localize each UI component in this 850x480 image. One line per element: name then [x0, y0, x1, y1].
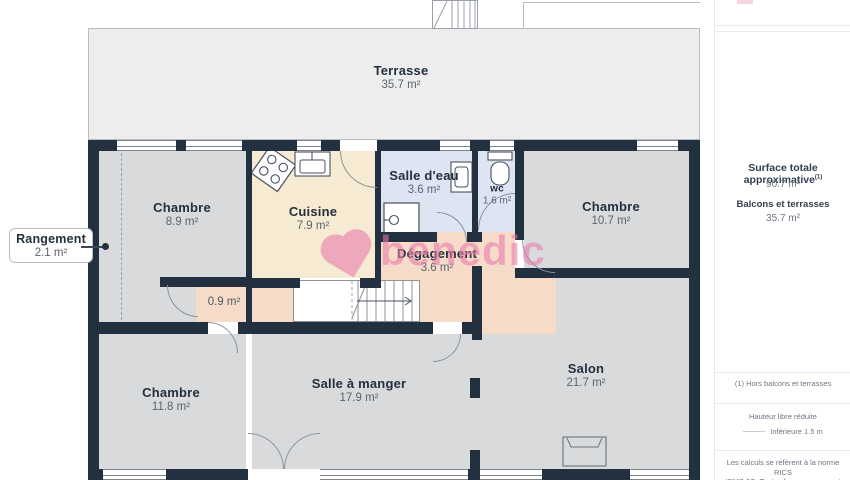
window — [117, 140, 176, 151]
window — [630, 469, 689, 480]
room-label-salle-a-manger: Salle à manger 17.9 m² — [312, 376, 407, 404]
room-degagement-opening-floor — [524, 278, 556, 334]
floor-plan-page: Terrasse 35.7 m² Chambre 8.9 m² Cuisine … — [0, 0, 850, 480]
room-salon-upper-floor — [556, 278, 689, 334]
total-surface-value: 90.7 m² — [717, 179, 849, 190]
legend-row: Inférieure 1.5 m — [717, 427, 849, 436]
window — [440, 140, 470, 151]
reduced-height-legend-line — [743, 431, 765, 432]
room-label-salon: Salon 21.7 m² — [567, 361, 606, 389]
window — [103, 469, 166, 480]
room-label-salle-eau: Salle d'eau 3.6 m² — [389, 168, 459, 196]
callout-leader-dot — [102, 243, 109, 250]
room-label-cuisine: Cuisine 7.9 m² — [289, 204, 337, 232]
legend-item-label: Inférieure 1.5 m — [770, 427, 823, 436]
room-label-terrasse: Terrasse 35.7 m² — [374, 63, 429, 91]
window — [186, 140, 242, 151]
divider — [715, 403, 850, 404]
exterior-stairs-icon — [432, 0, 478, 29]
window — [320, 469, 468, 480]
sidebar-footnote: (1) Hors balcons et terrasses — [717, 379, 849, 388]
wall — [472, 151, 478, 235]
door-opening — [248, 469, 320, 480]
sidebar-logo-mark — [737, 0, 753, 4]
divider — [715, 31, 850, 32]
divider — [715, 450, 850, 451]
balconies-title: Balcons et terrasses — [717, 199, 849, 210]
wall — [88, 140, 99, 480]
wall — [470, 378, 480, 398]
divider — [715, 372, 850, 373]
door-opening — [340, 140, 377, 151]
window — [297, 140, 321, 151]
stove-icon — [252, 150, 300, 198]
window — [637, 140, 678, 151]
wall — [238, 322, 433, 334]
room-label-chambre-2: Chambre 10.7 m² — [582, 199, 640, 227]
wall — [246, 151, 252, 334]
wall — [470, 450, 480, 469]
wall — [360, 278, 381, 288]
wall — [99, 322, 208, 334]
room-label-closet: 0.9 m² — [208, 296, 241, 308]
wall — [515, 151, 524, 240]
info-sidebar: Surface totale approximative(1) 90.7 m² … — [714, 0, 850, 480]
kitchen-sink-icon — [294, 151, 332, 179]
window — [490, 140, 514, 151]
disclaimer: Les calculs se réfèrent à la norme RICS … — [717, 458, 849, 480]
upper-landing-outline — [523, 2, 700, 28]
room-label-degagement: Dégagement 3.6 m² — [397, 246, 477, 274]
room-label-chambre-1: Chambre 8.9 m² — [153, 200, 211, 228]
room-label-chambre-3: Chambre 11.8 m² — [142, 385, 200, 413]
wall — [689, 140, 700, 480]
fireplace-icon — [562, 436, 607, 467]
wall — [462, 322, 475, 334]
door-opening — [433, 322, 462, 334]
legend-title: Hauteur libre réduite — [717, 412, 849, 421]
wall — [381, 232, 437, 242]
room-label-wc: wc 1.6 m² — [483, 184, 511, 207]
wall — [252, 278, 300, 288]
wall — [88, 140, 700, 151]
reduced-height-dashed-line — [121, 153, 122, 320]
interior-stairs-icon — [293, 280, 420, 322]
window — [480, 469, 542, 480]
divider — [715, 25, 850, 26]
balconies-value: 35.7 m² — [717, 213, 849, 224]
